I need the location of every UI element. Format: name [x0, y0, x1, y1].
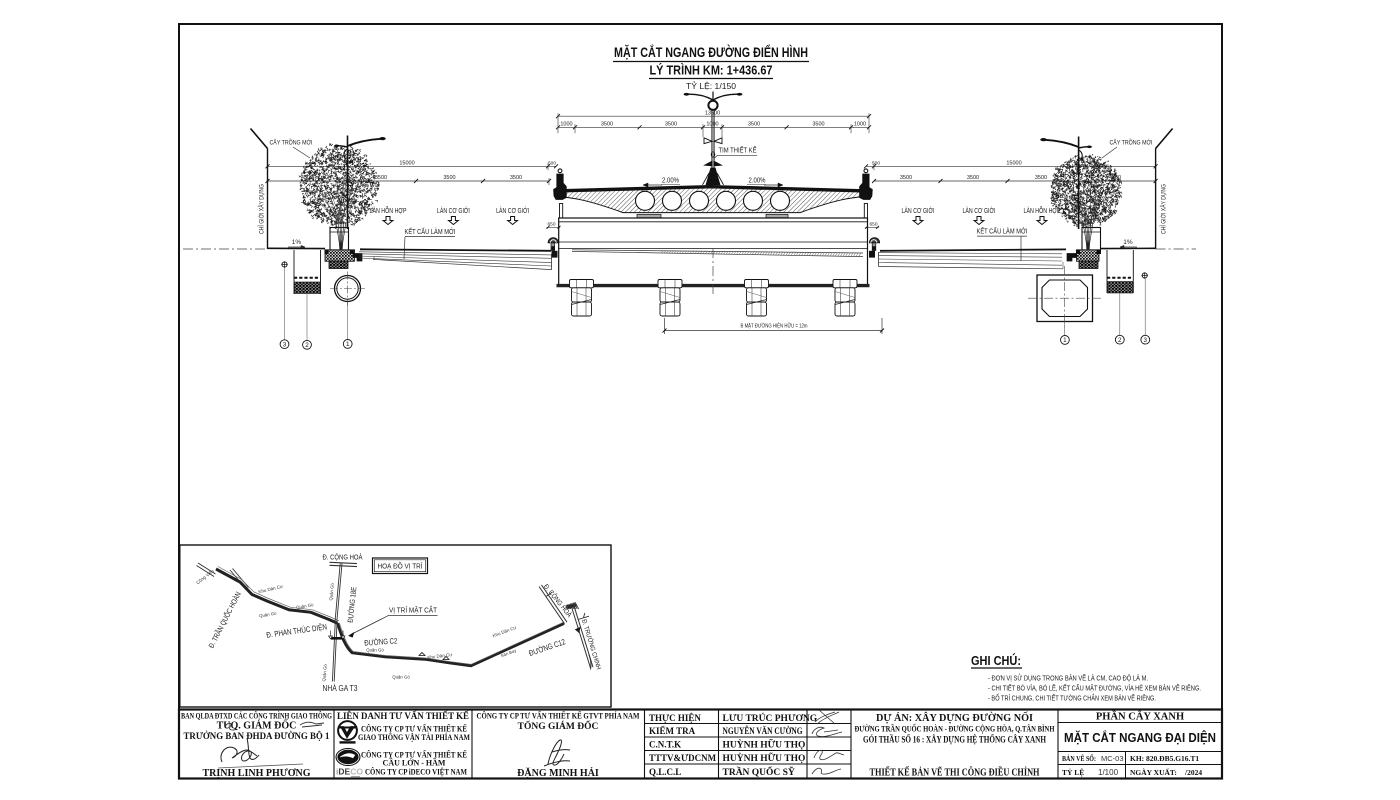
- svg-text:LÀN HỖN HỢP: LÀN HỖN HỢP: [1024, 206, 1061, 215]
- svg-text:500: 500: [872, 160, 880, 166]
- svg-text:Q.L.C.L: Q.L.C.L: [649, 767, 681, 777]
- svg-text:1%: 1%: [292, 239, 302, 246]
- svg-text:3500: 3500: [665, 121, 677, 127]
- svg-text:CHỈ GIỚI XÂY DỰNG: CHỈ GIỚI XÂY DỰNG: [257, 184, 266, 234]
- svg-text:3500: 3500: [900, 175, 912, 181]
- svg-text:2: 2: [1118, 337, 1122, 344]
- svg-text:3500: 3500: [375, 175, 387, 181]
- svg-text:KIỂM TRA: KIỂM TRA: [649, 726, 696, 736]
- svg-text:THIẾT KẾ BẢN VẼ THI CÔNG ĐIỀU: THIẾT KẾ BẢN VẼ THI CÔNG ĐIỀU CHỈNH: [870, 766, 1040, 779]
- svg-text:KẾT CẤU LÀM MỚI: KẾT CẤU LÀM MỚI: [405, 226, 456, 236]
- svg-text:PHẦN CÂY XANH: PHẦN CÂY XANH: [1096, 710, 1184, 723]
- svg-text:3500: 3500: [1035, 175, 1047, 181]
- svg-text:3500: 3500: [967, 175, 979, 181]
- svg-text:LƯU TRÚC PHƯƠNG: LƯU TRÚC PHƯƠNG: [723, 712, 818, 724]
- svg-text:/2024: /2024: [1184, 768, 1202, 777]
- svg-text:LÀN HỖN HỢP: LÀN HỖN HỢP: [370, 206, 407, 215]
- svg-text:1000: 1000: [854, 121, 866, 127]
- svg-text:Đ. CỘNG HOÀ: Đ. CỘNG HOÀ: [323, 553, 363, 562]
- svg-text:MC-03: MC-03: [1101, 754, 1124, 763]
- svg-text:3500: 3500: [748, 121, 760, 127]
- svg-text:TIM THIẾT KẾ: TIM THIẾT KẾ: [719, 145, 757, 155]
- svg-text:15000: 15000: [1006, 160, 1021, 166]
- svg-text:BẢN VẼ SỐ:: BẢN VẼ SỐ:: [1062, 753, 1096, 763]
- svg-text:HOẠ ĐỒ VỊ TRÍ: HOẠ ĐỒ VỊ TRÍ: [378, 560, 424, 570]
- svg-text:ĐƯỜNG TRẦN QUỐC HOÀN - ĐƯỜNG C: ĐƯỜNG TRẦN QUỐC HOÀN - ĐƯỜNG CỘNG HÒA, Q…: [855, 724, 1055, 734]
- svg-text:iDECO: iDECO: [336, 767, 363, 777]
- svg-text:CHỈ GIỚI XÂY DỰNG: CHỈ GIỚI XÂY DỰNG: [1159, 184, 1168, 234]
- svg-text:LÀN CƠ GIỚI: LÀN CƠ GIỚI: [437, 206, 470, 215]
- svg-text:1/100: 1/100: [1098, 768, 1119, 777]
- svg-text:LÀN CƠ GIỚI: LÀN CƠ GIỚI: [963, 206, 996, 215]
- svg-text:MẶT CẮT NGANG ĐẠI DIỆN: MẶT CẮT NGANG ĐẠI DIỆN: [1064, 730, 1216, 745]
- svg-text:VỊ TRÍ MẶT CẮT: VỊ TRÍ MẶT CẮT: [389, 606, 437, 615]
- svg-text:13500: 13500: [705, 110, 720, 116]
- svg-text:1000: 1000: [706, 121, 718, 127]
- svg-text:CÔNG TY CP TƯ VẤN THIẾT KẾ: CÔNG TY CP TƯ VẤN THIẾT KẾ: [361, 724, 467, 734]
- svg-text:Quận Gò: Quận Gò: [366, 648, 384, 653]
- svg-text:15000: 15000: [399, 160, 414, 166]
- svg-text:1%: 1%: [1123, 239, 1133, 246]
- svg-text:LÝ TRÌNH KM: 1+436.67: LÝ TRÌNH KM: 1+436.67: [650, 63, 773, 78]
- svg-text:- ĐƠN VỊ SỬ DỤNG TRONG BẢN VẼ: - ĐƠN VỊ SỬ DỤNG TRONG BẢN VẼ LÀ CM, CAO…: [988, 674, 1148, 683]
- svg-text:2.00%: 2.00%: [662, 175, 679, 184]
- svg-text:3500: 3500: [812, 121, 824, 127]
- svg-text:TUQ. GIÁM ĐỐC: TUQ. GIÁM ĐỐC: [217, 719, 297, 732]
- svg-text:ĐẶNG MINH HẢI: ĐẶNG MINH HẢI: [517, 766, 599, 779]
- svg-text:Quận Gò: Quận Gò: [392, 675, 410, 680]
- svg-text:CẦU LỚN - HẦM: CẦU LỚN - HẦM: [383, 758, 446, 768]
- svg-text:GIAO THÔNG VẬN TẢI PHÍA NAM: GIAO THÔNG VẬN TẢI PHÍA NAM: [358, 732, 470, 742]
- svg-text:GÓI THẦU SỐ 16 : XÂY DỰNG HỆ T: GÓI THẦU SỐ 16 : XÂY DỰNG HỆ THỐNG CÂY X…: [863, 735, 1046, 745]
- svg-text:3: 3: [283, 342, 287, 349]
- svg-text:1: 1: [1063, 337, 1067, 344]
- svg-text:KH: 820.ĐB5.G16.T1: KH: 820.ĐB5.G16.T1: [1130, 754, 1199, 763]
- svg-text:GHI CHÚ:: GHI CHÚ:: [971, 653, 1021, 668]
- svg-text:MẶT CẮT NGANG ĐƯỜNG ĐIỂN HÌNH: MẶT CẮT NGANG ĐƯỜNG ĐIỂN HÌNH: [614, 45, 808, 60]
- svg-text:2: 2: [305, 342, 309, 349]
- svg-text:3: 3: [1144, 337, 1148, 344]
- svg-text:TRỊNH LINH PHƯƠNG: TRỊNH LINH PHƯƠNG: [203, 768, 311, 779]
- svg-text:NGÀY XUẤT:: NGÀY XUẤT:: [1130, 767, 1177, 777]
- svg-text:3500: 3500: [443, 175, 455, 181]
- svg-text:THỰC HIỆN: THỰC HIỆN: [649, 713, 701, 723]
- svg-text:NHÀ GA T3: NHÀ GA T3: [323, 684, 358, 693]
- svg-text:B MẶT ĐƯỜNG HIỆN HỮU = 12m: B MẶT ĐƯỜNG HIỆN HỮU = 12m: [741, 322, 808, 330]
- svg-text:500: 500: [548, 160, 556, 166]
- svg-text:TTTV&ƯDCNM: TTTV&ƯDCNM: [649, 753, 717, 763]
- svg-text:LÀN CƠ GIỚI: LÀN CƠ GIỚI: [496, 206, 529, 215]
- svg-text:TỶ LỆ: TỶ LỆ: [1062, 767, 1084, 777]
- svg-text:TỶ LỆ: 1/150: TỶ LỆ: 1/150: [686, 82, 737, 91]
- svg-text:CÔNG TY CP TƯ VẤN THIẾT KẾ GTV: CÔNG TY CP TƯ VẤN THIẾT KẾ GTVT PHÍA NAM: [477, 711, 640, 721]
- svg-text:DỰ ÁN: XÂY DỰNG ĐƯỜNG NỐI: DỰ ÁN: XÂY DỰNG ĐƯỜNG NỐI: [876, 711, 1033, 724]
- svg-text:650: 650: [869, 221, 877, 227]
- svg-text:CÔNG TY CP iDECO VIỆT NAM: CÔNG TY CP iDECO VIỆT NAM: [365, 767, 467, 777]
- svg-text:C.N.T.K: C.N.T.K: [649, 740, 681, 750]
- svg-text:BAN QLDA ĐTXD CÁC CÔNG TRÌNH G: BAN QLDA ĐTXD CÁC CÔNG TRÌNH GIAO THÔNG: [181, 711, 332, 721]
- svg-text:1000: 1000: [560, 121, 572, 127]
- svg-text:KẾT CẤU LÀM MỚI: KẾT CẤU LÀM MỚI: [977, 226, 1028, 236]
- svg-text:2.00%: 2.00%: [749, 175, 766, 184]
- svg-text:3500: 3500: [601, 121, 613, 127]
- svg-text:1: 1: [346, 341, 350, 348]
- svg-text:LÀN CƠ GIỚI: LÀN CƠ GIỚI: [902, 206, 935, 215]
- svg-text:3500: 3500: [510, 175, 522, 181]
